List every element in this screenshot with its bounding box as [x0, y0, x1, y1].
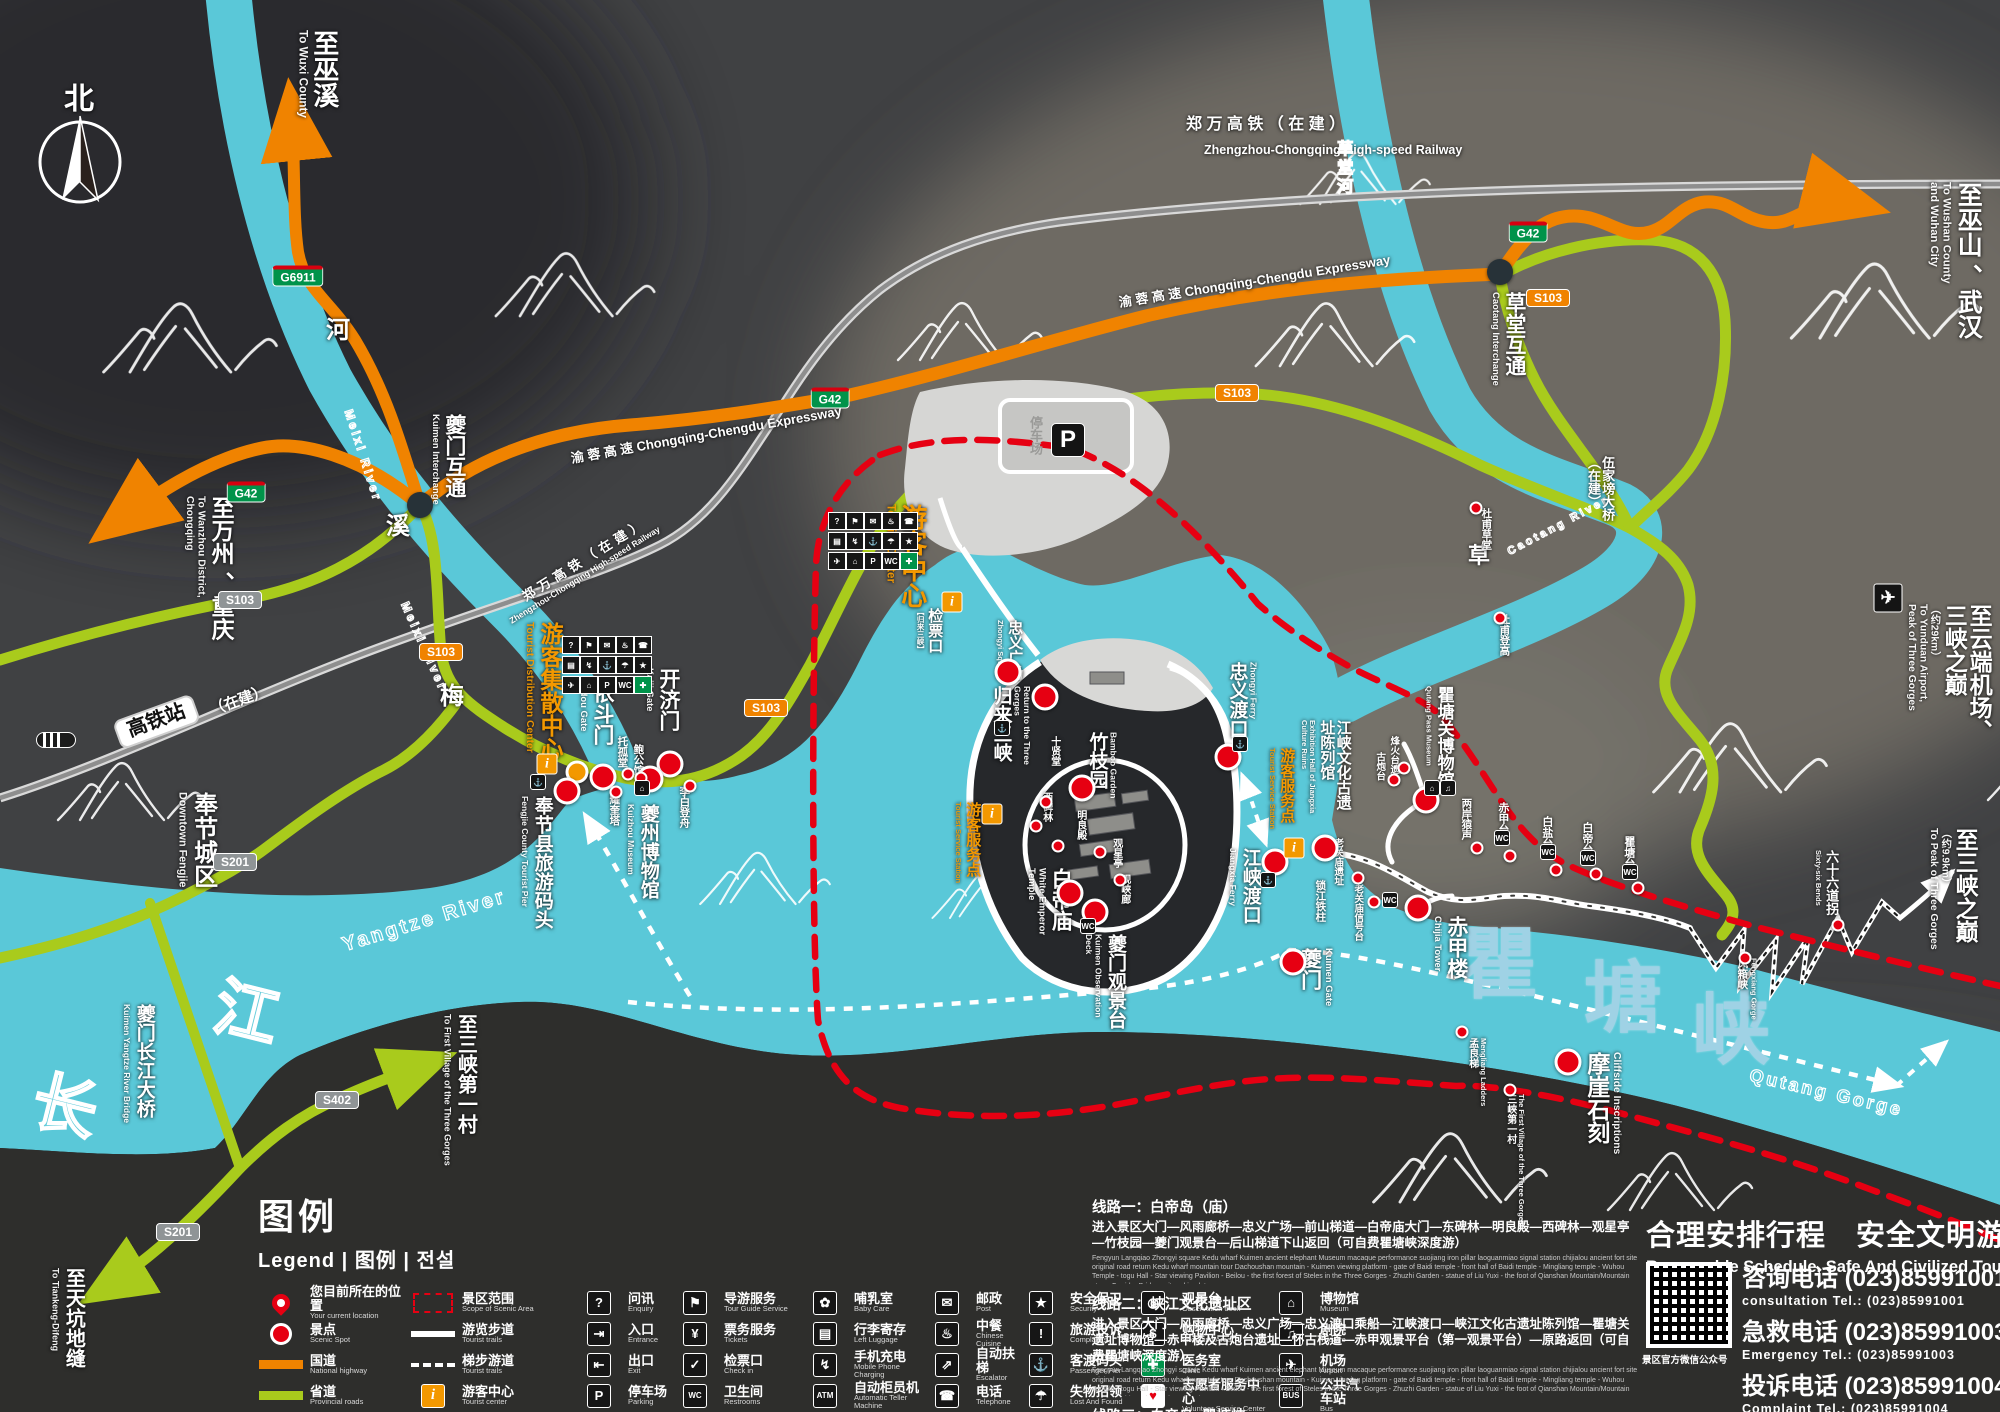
- glyph-icon: ✓: [683, 1353, 707, 1377]
- small-icon: ⌂: [1424, 780, 1440, 796]
- glyph-icon: ?: [587, 1291, 611, 1315]
- road-badge-g42: G42: [811, 388, 850, 409]
- legend-icon-dash-white: [410, 1363, 456, 1367]
- label-suojiang-pillar: 锁江铁柱: [1314, 880, 1325, 922]
- legend-item: P停车场Parking: [576, 1380, 672, 1411]
- legend-icon-g-⇥: ⇥: [576, 1322, 622, 1346]
- legend-item: ⇥入口Entrance: [576, 1318, 672, 1349]
- facility-icon: ↯: [580, 656, 598, 674]
- spot: [1632, 882, 1645, 895]
- legend-column: ?问讯Enquiry⇥入口Entrance⇤出口ExitP停车场Parking: [576, 1287, 672, 1411]
- legend-en: Left Luggage: [854, 1336, 906, 1344]
- legend-icon-line-orange: [258, 1360, 304, 1369]
- legend-icon-g-✉: ✉: [924, 1291, 970, 1315]
- contact-en: Emergency Tel.: (023)85991003: [1742, 1348, 2000, 1362]
- legend-en: Mobile Phone Charging: [854, 1363, 924, 1379]
- legend-item: ✓检票口Check in: [672, 1349, 802, 1380]
- legend-icon-g-?: ?: [576, 1291, 622, 1315]
- contact-en: Complaint Tel.: (023)85991004: [1742, 1402, 2000, 1412]
- legend-text: 导游服务Tour Guide Service: [724, 1292, 788, 1314]
- legend-en: Entrance: [628, 1336, 658, 1344]
- glyph-icon: ▤: [813, 1322, 837, 1346]
- label-check-in-gate: 【归来三峡】检票口: [916, 608, 942, 653]
- legend-cn: 您目前所在的位置: [310, 1285, 410, 1312]
- small-icon: ♫: [1440, 780, 1456, 796]
- facility-icon: ★: [634, 656, 652, 674]
- small-icon: ⚓: [994, 720, 1010, 736]
- legend-item: 省道Provincial roads: [258, 1380, 410, 1411]
- legend-cn: 停车场: [628, 1385, 667, 1399]
- legend-en: Restrooms: [724, 1398, 763, 1406]
- legend-en: Baby Care: [854, 1305, 893, 1313]
- label-qutang-qu: 瞿: [1460, 922, 1538, 1006]
- glyph-icon: ☎: [935, 1384, 959, 1408]
- wechat-qr-code: [1646, 1262, 1732, 1348]
- legend-item: 景点Scenic Spot: [258, 1318, 410, 1349]
- legend-icon-g-¥: ¥: [672, 1322, 718, 1346]
- label-to-wuxi: To Wuxi County至巫溪: [296, 30, 339, 118]
- legend-cn: 游览步道: [462, 1323, 514, 1337]
- legend-text: 您目前所在的位置Your current location: [310, 1285, 410, 1320]
- legend-cn: 邮政: [976, 1292, 1002, 1306]
- legend-en: Telephone: [976, 1398, 1011, 1406]
- legend-icon-g-▤: ▤: [802, 1322, 848, 1346]
- legend-cn: 自动柜员机: [854, 1381, 924, 1395]
- legend-cn: 哺乳室: [854, 1292, 893, 1306]
- legend-cn: 中餐: [976, 1319, 1018, 1333]
- legend-item: ATM自动柜员机Automatic Teller Machine: [802, 1380, 924, 1411]
- route-list: 线路一：白帝岛（庙）进入景区大门—风雨廊桥—忠义广场—前山梯道—白帝庙大门—东碑…: [1092, 1196, 1640, 1412]
- route-1: 线路一：白帝岛（庙）进入景区大门—风雨廊桥—忠义广场—前山梯道—白帝庙大门—东碑…: [1092, 1196, 1640, 1284]
- legend-text: 哺乳室Baby Care: [854, 1292, 893, 1314]
- legend-item: ?问讯Enquiry: [576, 1287, 672, 1318]
- facility-icon: ↯: [846, 532, 864, 550]
- legend-en: Scenic Spot: [310, 1336, 350, 1344]
- legend-text: 手机充电Mobile Phone Charging: [854, 1350, 924, 1379]
- legend-text: 问讯Enquiry: [628, 1292, 654, 1314]
- ibox-icon: i: [942, 592, 963, 613]
- glyph-icon: ATM: [813, 1384, 837, 1408]
- legend-cn: 国道: [310, 1354, 367, 1368]
- facility-icon: ✈: [562, 676, 580, 694]
- facility-icon: ✚: [900, 552, 918, 570]
- spot: [1030, 820, 1043, 833]
- facility-icon: ?: [562, 636, 580, 654]
- pbox-icon: P: [1051, 423, 1085, 457]
- glyph-icon: ↯: [813, 1353, 837, 1377]
- facility-icon: ⚓: [864, 532, 882, 550]
- label-cliffside-inscriptions: Cliffside Inscriptions摩崖石刻: [1584, 1052, 1622, 1154]
- facility-icon: ✈: [828, 552, 846, 570]
- spot: [684, 780, 697, 793]
- road-badge-s201: S201: [156, 1223, 200, 1241]
- spot: [1470, 502, 1483, 515]
- spot: [1504, 1084, 1517, 1097]
- legend-icon-g-✓: ✓: [672, 1353, 718, 1377]
- small-icon: WC: [1540, 844, 1556, 860]
- line-white-icon: [411, 1331, 455, 1337]
- legend-cn: 景区范围: [462, 1292, 534, 1306]
- legend-item: 梯步游道Tourist trails: [410, 1349, 576, 1380]
- facility-icon: P: [864, 552, 882, 570]
- glyph-icon: ¥: [683, 1322, 707, 1346]
- road-badge-g42: G42: [227, 482, 266, 503]
- label-fengjie-pier: Fengjie County Tourist Pier奉节县旅游码头: [520, 796, 552, 929]
- road-badge-g6911: G6911: [272, 266, 323, 287]
- legend-item: ⇤出口Exit: [576, 1349, 672, 1380]
- legend-icon-g-P: P: [576, 1384, 622, 1408]
- legend-item: i游客中心Tourist center: [410, 1380, 576, 1411]
- legend-cn: 检票口: [724, 1354, 763, 1368]
- spot: [1040, 796, 1053, 809]
- road-badge-s103: S103: [1526, 289, 1570, 307]
- glyph-icon: ⚓: [1029, 1353, 1053, 1377]
- ibox-icon: i: [537, 754, 558, 775]
- route-title: 线路三：白帝岛+瞿塘峡: [1092, 1405, 1640, 1412]
- legend-icon-g-⚓: ⚓: [1018, 1353, 1064, 1377]
- facility-icon-strip: ?⚑✉♨☎▤↯⚓☂★✈⌂PWC✚: [828, 512, 916, 570]
- legend-text: 自动柜员机Automatic Teller Machine: [854, 1381, 924, 1410]
- map-root: 北To Wuxi County至巫溪To Wushan County and W…: [0, 0, 2000, 1412]
- legend-cn: 自动扶梯: [976, 1347, 1018, 1374]
- facility-icon: ✉: [864, 512, 882, 530]
- legend-en: Enquiry: [628, 1305, 654, 1313]
- facility-icon: ▤: [828, 532, 846, 550]
- label-chijia-tower: Chijia Tower赤甲楼: [1432, 916, 1467, 979]
- legend-icon-line-white: [410, 1331, 456, 1337]
- legend-item: 景区范围Scope of Scenic Area: [410, 1287, 576, 1318]
- small-icon: ⌂: [634, 780, 650, 796]
- road-badge-s103: S103: [1215, 384, 1259, 402]
- road-badge-s402: S402: [315, 1091, 359, 1109]
- legend-cn: 行李寄存: [854, 1323, 906, 1337]
- legend-text: 行李寄存Left Luggage: [854, 1323, 906, 1345]
- label-qutang-pass-museum: Qutang Pass Museum瞿塘关博物馆: [1424, 686, 1453, 788]
- facility-icon-strip: ?⚑✉♨☎▤↯⚓☂★✈⌂PWC✚: [562, 636, 650, 694]
- facility-icon: WC: [616, 676, 634, 694]
- legend-cn: 问讯: [628, 1292, 654, 1306]
- legend-en: Check in: [724, 1367, 763, 1375]
- small-icon: WC: [1494, 830, 1510, 846]
- glyph-icon: ★: [1029, 1291, 1053, 1315]
- legend-item: WC卫生间Restrooms: [672, 1380, 802, 1411]
- label-guanxingting: 观星亭: [1110, 838, 1121, 868]
- legend-en: Exit: [628, 1367, 654, 1375]
- legend-item: 国道National highway: [258, 1349, 410, 1380]
- train-icon: [36, 732, 76, 748]
- route-en: Fengyun Langqiao Zhongyi square Kedu wha…: [1092, 1366, 1640, 1396]
- contact-cn: 咨询电话 (023)85991001: [1742, 1258, 2000, 1293]
- legend-cn: 梯步游道: [462, 1354, 514, 1368]
- label-fengxiang-gorge: Fengxiang Gorge风箱峡: [1736, 958, 1757, 1020]
- legend-icon-g-⇗: ⇗: [924, 1353, 970, 1377]
- route-title: 线路一：白帝岛（庙）: [1092, 1196, 1640, 1217]
- ibox-icon: i: [982, 804, 1003, 825]
- label-hsr-label-top: 郑 万 高 铁 （ 在 建 ）: [1186, 116, 1345, 133]
- legend-icon-g-☎: ☎: [924, 1384, 970, 1408]
- label-laoguanmiao-signal: 老关庙信号台: [1352, 884, 1362, 941]
- legend-column: ⚑导游服务Tour Guide Service¥票务服务Tickets✓检票口C…: [672, 1287, 802, 1411]
- legend-en: Tickets: [724, 1336, 776, 1344]
- facility-icon: ✉: [598, 636, 616, 654]
- spot: [1832, 919, 1845, 932]
- legend-item: 游览步道Tourist trails: [410, 1318, 576, 1349]
- legend-text: 自动扶梯Escalator: [976, 1347, 1018, 1382]
- spot-exhibition: [1312, 835, 1339, 862]
- legend-icon-line-green: [258, 1391, 304, 1400]
- legend-column: 景区范围Scope of Scenic Area游览步道Tourist trai…: [410, 1287, 576, 1411]
- facility-icon: ⌂: [846, 552, 864, 570]
- legend-cn: 电话: [976, 1385, 1011, 1399]
- label-kuimen-interchange: Kuimen Interchange夔门互通: [430, 414, 465, 505]
- spot: [1590, 868, 1603, 881]
- spot-caotang-ic: [1487, 259, 1513, 285]
- label-mengliang-ladder: Mengliang Ladders孟良梯: [1466, 1038, 1487, 1106]
- label-meixi-he: 河: [326, 318, 350, 344]
- line-green-icon: [259, 1391, 303, 1400]
- legend-icon-dot: [258, 1323, 304, 1345]
- facility-icon: WC: [882, 552, 900, 570]
- plane-icon: ✈: [1874, 584, 1903, 613]
- small-icon: ⚓: [1232, 736, 1248, 752]
- legend-text: 景区范围Scope of Scenic Area: [462, 1292, 534, 1314]
- road-badge-g42: G42: [1509, 222, 1548, 243]
- legend-cn: 出口: [628, 1354, 654, 1368]
- spot-kuimen-ic: [407, 492, 433, 518]
- label-qutang-tang: 塘: [1584, 956, 1662, 1040]
- label-north: 北: [64, 84, 94, 116]
- spot: [1739, 952, 1752, 965]
- legend-icon-pin: [258, 1294, 304, 1312]
- label-jiangxia-ferry: Jiangxia Ferry江峡渡口: [1228, 848, 1260, 924]
- legend-icon-dash-red: [410, 1293, 456, 1313]
- facility-icon: ?: [828, 512, 846, 530]
- glyph-icon: ⚑: [683, 1291, 707, 1315]
- road-badge-s103: S103: [218, 591, 262, 609]
- spot: [610, 786, 623, 799]
- road-badge-s103: S103: [419, 643, 463, 661]
- legend-cn: 入口: [628, 1323, 658, 1337]
- legend-item: ⚑导游服务Tour Guide Service: [672, 1287, 802, 1318]
- label-kuizhou-museum: Kuizhou Museum夔州博物馆: [626, 804, 658, 899]
- route-title: 线路二：峡江文化遗址区: [1092, 1293, 1640, 1314]
- legend-icon-g-ATM: ATM: [802, 1384, 848, 1408]
- legend-cn: 票务服务: [724, 1323, 776, 1337]
- legend-en: Automatic Teller Machine: [854, 1394, 924, 1410]
- facility-icon: ✚: [634, 676, 652, 694]
- legend-cn: 手机充电: [854, 1350, 924, 1364]
- facility-icon: ♨: [882, 512, 900, 530]
- legend-item: ☎电话Telephone: [924, 1380, 1018, 1411]
- label-kuimen-yangtze-bridge: Kuimen Yangtze River Bridge夔门长江大桥: [122, 1004, 154, 1123]
- legend-icon-g-☂: ☂: [1018, 1384, 1064, 1408]
- legend-text: 票务服务Tickets: [724, 1323, 776, 1345]
- legend-text: 景点Scenic Spot: [310, 1323, 350, 1345]
- notice-cn: 合理安排行程 安全文明游览: [1646, 1212, 1996, 1254]
- contact-row-3: 投诉电话 (023)85991004Complaint Tel.: (023)8…: [1742, 1366, 2000, 1412]
- label-to-wushan-wuhan: To Wushan County and Wuhan City至巫山 、武汉: [1928, 182, 1981, 339]
- qr-caption: 景区官方微信公众号: [1642, 1352, 1737, 1366]
- legend-icon-g-↯: ↯: [802, 1353, 848, 1377]
- small-icon: ⚓: [1260, 872, 1276, 888]
- label-wujiabang-bridge: 伍家塝大桥 （在建）: [1586, 456, 1614, 521]
- label-parking-lot: 停车场: [1028, 416, 1042, 455]
- legend-text: 电话Telephone: [976, 1385, 1011, 1407]
- info-icon: i: [421, 1384, 445, 1408]
- label-meixi-xi: 溪: [386, 514, 410, 540]
- spot-pier: [554, 778, 581, 805]
- label-to-yunduan-airport: （约29km） To Yunduan Airport, Peak of Thre…: [1906, 604, 1991, 742]
- facility-icon: ☂: [882, 532, 900, 550]
- facility-icon: ★: [900, 532, 918, 550]
- legend-cn: 导游服务: [724, 1292, 788, 1306]
- legend-icon-g-★: ★: [1018, 1291, 1064, 1315]
- legend-en: Tourist trails: [462, 1367, 514, 1375]
- legend-item: ✿哺乳室Baby Care: [802, 1287, 924, 1318]
- legend-en: National highway: [310, 1367, 367, 1375]
- legend-item: ▤行李寄存Left Luggage: [802, 1318, 924, 1349]
- facility-icon: ☎: [634, 636, 652, 654]
- route-en: Fengyun Langqiao Zhongyi square Kedu wha…: [1092, 1254, 1640, 1284]
- facility-icon: ▤: [562, 656, 580, 674]
- dash-red-icon: [413, 1293, 453, 1313]
- glyph-icon: ✉: [935, 1291, 959, 1315]
- spot: [1398, 762, 1411, 775]
- contact-list: 咨询电话 (023)85991001consultation Tel.: (02…: [1742, 1258, 2000, 1412]
- small-icon: WC: [1580, 850, 1596, 866]
- legend-text: 游览步道Tourist trails: [462, 1323, 514, 1345]
- legend-column: ✿哺乳室Baby Care▤行李寄存Left Luggage↯手机充电Mobil…: [802, 1287, 924, 1411]
- spot-baidimiao: [1057, 880, 1084, 907]
- pin-icon: [268, 1290, 293, 1315]
- facility-icon: ⚓: [598, 656, 616, 674]
- legend-icon-g-✿: ✿: [802, 1291, 848, 1315]
- legend-icon-g-WC: WC: [672, 1384, 718, 1408]
- label-downtown-fengjie: Downtown Fengjie奉节城区: [176, 792, 216, 888]
- label-tuogutang: 托孤堂: [616, 736, 627, 768]
- label-to-wanzhou: To Wanzhou District, Chongqing至万州 、重庆: [184, 496, 233, 640]
- legend-item: ⇗自动扶梯Escalator: [924, 1349, 1018, 1380]
- legend-text: 中餐Chinese Cuisine: [976, 1319, 1018, 1348]
- spot: [1052, 840, 1065, 853]
- facility-icon: ♨: [616, 636, 634, 654]
- dot-icon: [270, 1323, 292, 1345]
- legend-text: 出口Exit: [628, 1354, 654, 1376]
- legend-en: Scope of Scenic Area: [462, 1305, 534, 1313]
- spot-kuimen-gate: [1280, 949, 1307, 976]
- legend-text: 卫生间Restrooms: [724, 1385, 763, 1407]
- legend-en: Tourist trails: [462, 1336, 514, 1344]
- label-sixty-six-bends: Sixty-six Bends六十六道拐: [1814, 850, 1838, 915]
- facility-icon: ⚑: [580, 636, 598, 654]
- route-body: 进入景区大门—风雨廊桥—忠义广场—前山梯道—白帝庙大门—东碑林—明良殿—西碑林—…: [1092, 1219, 1640, 1252]
- glyph-icon: WC: [683, 1384, 707, 1408]
- facility-icon: P: [598, 676, 616, 694]
- spot: [1352, 872, 1365, 885]
- label-qutang-xia: 峡: [1692, 988, 1770, 1072]
- legend-en: Parking: [628, 1398, 667, 1406]
- small-icon: ⚓: [530, 774, 546, 790]
- label-kuimen-deck: Kuimen Observation Deck夔门观景台: [1084, 934, 1125, 1029]
- label-yaokuita: 耀奎塔: [608, 794, 619, 826]
- spot: [1550, 864, 1563, 877]
- road-badge-s201: S201: [213, 853, 257, 871]
- label-mingliangdian: 明良殿: [1074, 810, 1085, 840]
- route-2: 线路二：峡江文化遗址区进入景区大门—风雨廊桥—忠义广场—忠义渡口乘船—江峡渡口—…: [1092, 1293, 1640, 1397]
- legend-icon-g-!: !: [1018, 1322, 1064, 1346]
- glyph-icon: ♨: [935, 1322, 959, 1346]
- label-tourist-dist-center: Tourist Distribution Center游客集散中心: [524, 622, 562, 760]
- legend-text: 检票口Check in: [724, 1354, 763, 1376]
- legend-item: ¥票务服务Tickets: [672, 1318, 802, 1349]
- legend-text: 游客中心Tourist center: [462, 1385, 514, 1407]
- glyph-icon: ⇤: [587, 1353, 611, 1377]
- label-shixiantang: 十贤堂: [1048, 736, 1059, 766]
- label-exhibition-hall: Exhibition Hall of Jiangxia Culture Ruin…: [1300, 720, 1351, 813]
- facility-icon: ⌂: [580, 676, 598, 694]
- legend-en: Tourist center: [462, 1398, 514, 1406]
- label-service-station-east: Tourist Service Station游客服务点: [1268, 748, 1294, 829]
- spot-zhuzhi: [1069, 775, 1096, 802]
- spot: [1388, 774, 1401, 787]
- label-service-station-west: Tourist Service Station游客服务点: [954, 802, 980, 883]
- spot: [1494, 612, 1507, 625]
- contact-cn: 投诉电话 (023)85991004: [1742, 1366, 2000, 1401]
- route-body: 进入景区大门—风雨廊桥—忠义广场—忠义渡口乘船—江峡渡口—峡江文化古遗址陈列馆—…: [1092, 1316, 1640, 1365]
- label-caotang-interchange: Caotang Interchange草堂互通: [1490, 292, 1525, 386]
- contact-row-1: 咨询电话 (023)85991001consultation Tel.: (02…: [1742, 1258, 2000, 1308]
- facility-icon: ☎: [900, 512, 918, 530]
- contact-row-2: 急救电话 (023)85991003Emergency Tel.: (023)8…: [1742, 1312, 2000, 1362]
- legend-en: Provincial roads: [310, 1398, 363, 1406]
- label-gupaotai: 古炮台: [1374, 752, 1384, 781]
- legend-cn: 景点: [310, 1323, 350, 1337]
- label-to-tiankeng: To Tiankeng-Difeng至天坑地缝: [50, 1268, 83, 1368]
- spot: [1094, 846, 1107, 859]
- small-icon: WC: [1622, 864, 1638, 880]
- legend-icon-g-⚑: ⚑: [672, 1291, 718, 1315]
- legend-text: 停车场Parking: [628, 1385, 667, 1407]
- ibox-icon: i: [1284, 838, 1305, 859]
- spot-moya: [1555, 1049, 1582, 1076]
- legend-item: ✉邮政Post: [924, 1287, 1018, 1318]
- spot-zhongyi-square: [1032, 684, 1059, 711]
- label-liangan-yuansheng: 两岸猿声: [1460, 798, 1471, 840]
- label-zhongyi-ferry: Zhongyi Ferry忠义渡口: [1226, 662, 1258, 738]
- legend-en: Post: [976, 1305, 1002, 1313]
- legend-item: ♨中餐Chinese Cuisine: [924, 1318, 1018, 1349]
- legend-text: 入口Entrance: [628, 1323, 658, 1345]
- contact-en: consultation Tel.: (023)85991001: [1742, 1294, 2000, 1308]
- legend-column: ✉邮政Post♨中餐Chinese Cuisine⇗自动扶梯Escalator☎…: [924, 1287, 1018, 1411]
- spot: [1114, 874, 1127, 887]
- legend-text: 国道National highway: [310, 1354, 367, 1376]
- spot: [1471, 842, 1484, 855]
- legend-cn: 省道: [310, 1385, 363, 1399]
- small-icon: WC: [1382, 892, 1398, 908]
- legend-column: 您目前所在的位置Your current location景点Scenic Sp…: [258, 1287, 410, 1411]
- glyph-icon: P: [587, 1384, 611, 1408]
- legend-cn: 卫生间: [724, 1385, 763, 1399]
- route-3: 线路三：白帝岛+瞿塘峡线路一+线路二（可自费瞿塘峡深度游） 瞿塘峡深度游景点（乘…: [1092, 1405, 1640, 1412]
- legend-text: 省道Provincial roads: [310, 1385, 363, 1407]
- spot: [1368, 896, 1381, 909]
- legend-icon-g-♨: ♨: [924, 1322, 970, 1346]
- legend-item: 您目前所在的位置Your current location: [258, 1287, 410, 1318]
- spot-guilai: [995, 659, 1022, 686]
- spot: [1456, 1026, 1469, 1039]
- glyph-icon: ⇗: [935, 1353, 959, 1377]
